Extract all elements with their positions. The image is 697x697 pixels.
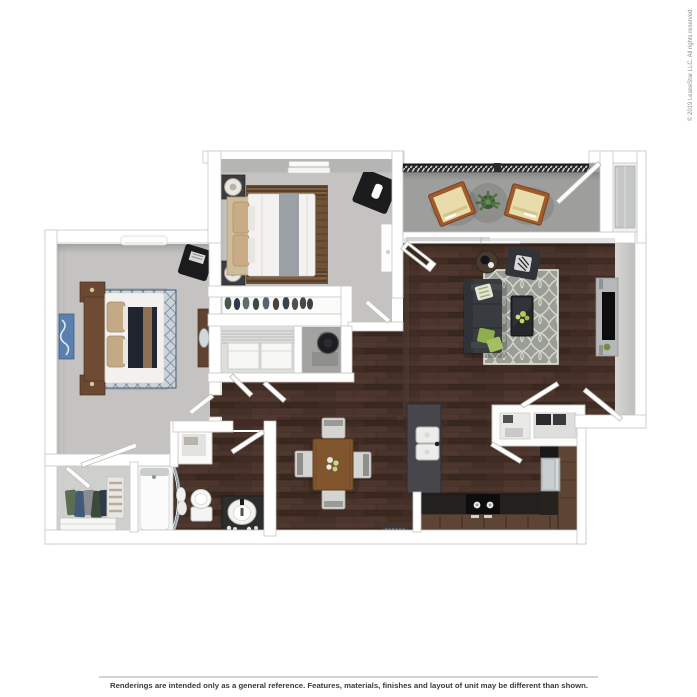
svg-text:© 2019 LeaseStar LLC. All righ: © 2019 LeaseStar LLC. All rights reserve… [686,8,694,121]
svg-text:Renderings are intended only a: Renderings are intended only as a genera… [110,681,588,690]
